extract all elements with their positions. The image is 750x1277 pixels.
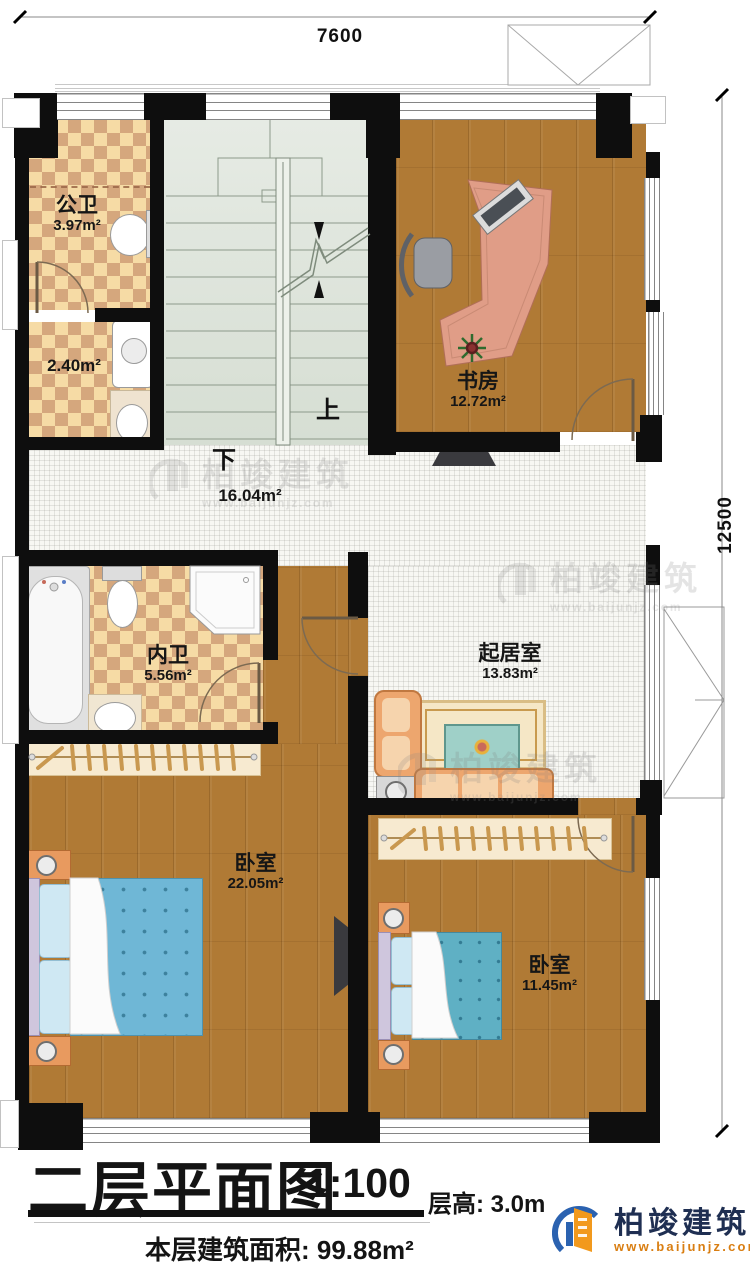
balcony-outline: [664, 607, 724, 798]
title-underline-thin: [34, 1222, 430, 1223]
room-area: 13.83m²: [455, 666, 565, 683]
room-area: 3.97m²: [38, 218, 116, 235]
watermark-brand: 柏竣建筑: [550, 552, 702, 600]
watermark-logo-icon: [498, 556, 540, 610]
company-name: 柏竣建筑: [614, 1208, 750, 1240]
watermark: 柏竣建筑 www.baijunjz.com: [498, 552, 702, 614]
room-area: 5.56m²: [128, 668, 208, 685]
company-logo: 柏竣建筑 www.baijunjz.com: [552, 1202, 750, 1260]
room-name: 公卫: [38, 194, 116, 218]
room-name: 起居室: [455, 642, 565, 666]
wardrobe-hangers-master: [29, 746, 257, 769]
watermark: 柏竣建筑 www.baijunjz.com: [398, 742, 602, 804]
room-label-hall: 16.04m²: [200, 486, 300, 505]
room-area: 2.40m²: [34, 356, 114, 375]
company-logo-icon: [552, 1202, 606, 1260]
company-website: www.baijunjz.com: [614, 1240, 750, 1254]
watermark-logo-icon: [398, 746, 440, 800]
stairs-up-label: 上: [316, 390, 340, 425]
floor-area-label: 本层建筑面积: 99.88m²: [145, 1230, 414, 1267]
room-label-public-bath: 公卫 3.97m²: [38, 194, 116, 234]
room-name: 卧室: [208, 852, 303, 876]
room-label-study: 书房 12.72m²: [428, 370, 528, 410]
room-area: 11.45m²: [502, 978, 597, 995]
watermark-url: www.baijunjz.com: [550, 600, 702, 614]
bed-fold-master: [70, 878, 120, 1034]
room-area: 16.04m²: [200, 486, 300, 505]
wardrobe-hangers-second: [381, 828, 607, 849]
room-area: 12.72m²: [428, 394, 528, 411]
room-label-master-bedroom: 卧室 22.05m²: [208, 852, 303, 892]
corner-shower: [190, 566, 260, 634]
room-area: 22.05m²: [208, 876, 303, 893]
desk-chair: [414, 238, 452, 288]
room-label-living: 起居室 13.83m²: [455, 642, 565, 682]
bathtub-faucet: [42, 580, 66, 591]
floor-height-label: 层高: 3.0m: [428, 1184, 545, 1219]
study-desk: [402, 180, 553, 366]
plant: [458, 334, 486, 362]
room-name: 内卫: [128, 644, 208, 668]
drawing-scale: 1:100: [306, 1160, 411, 1207]
stairs-down-label: 下: [212, 440, 236, 475]
room-name: 卧室: [502, 954, 597, 978]
watermark-logo-icon: [150, 452, 192, 506]
watermark-url: www.baijunjz.com: [450, 790, 602, 804]
dimension-width: 7600: [295, 26, 385, 48]
room-label-laundry: 2.40m²: [34, 356, 114, 375]
dimension-height: 12500: [715, 483, 737, 567]
plan-linework: [0, 0, 750, 1277]
bed-fold-second: [412, 932, 458, 1038]
watermark-brand: 柏竣建筑: [450, 742, 602, 790]
room-name: 书房: [428, 370, 528, 394]
skylight-outline: [508, 25, 650, 85]
title-underline-thick: [28, 1210, 424, 1217]
room-label-second-bedroom: 卧室 11.45m²: [502, 954, 597, 994]
room-label-ensuite: 内卫 5.56m²: [128, 644, 208, 684]
floor-plan-canvas: 柏竣建筑 www.baijunjz.com 柏竣建筑 www.baijunjz.…: [0, 0, 750, 1277]
